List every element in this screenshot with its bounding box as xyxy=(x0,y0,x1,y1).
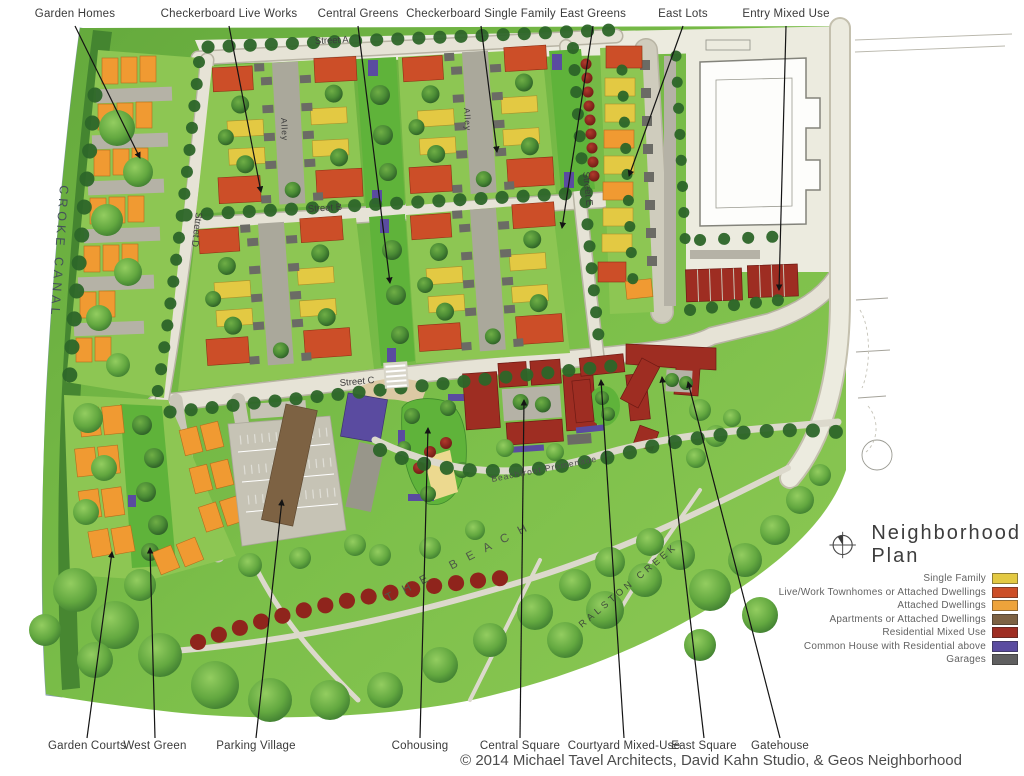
callout-parking-village: Parking Village xyxy=(216,740,296,752)
legend-label: Common House with Residential above xyxy=(804,641,986,652)
callout-cohousing: Cohousing xyxy=(392,740,449,752)
callout-checkerboard-live-works: Checkerboard Live Works xyxy=(161,8,298,20)
legend-row: Residential Mixed Use xyxy=(598,626,1018,639)
copyright-text: © 2014 Michael Tavel Architects, David K… xyxy=(460,752,962,769)
legend: Single Family Live/Work Townhomes or Att… xyxy=(598,572,1018,667)
legend-swatch-garages xyxy=(992,654,1018,665)
street-b-label: Street B xyxy=(308,202,343,215)
legend-swatch-common-house xyxy=(992,641,1018,652)
callout-checkerboard-single-family: Checkerboard Single Family xyxy=(406,8,556,20)
legend-label: Attached Dwellings xyxy=(897,600,986,611)
callout-east-square: East Square xyxy=(671,740,737,752)
legend-swatch-mixed-use xyxy=(992,627,1018,638)
callout-central-square: Central Square xyxy=(480,740,560,752)
legend-row: Live/Work Townhomes or Attached Dwelling… xyxy=(598,586,1018,599)
callout-east-greens: East Greens xyxy=(560,8,626,20)
legend-label: Apartments or Attached Dwellings xyxy=(830,614,986,625)
alley-west-label: Alley xyxy=(279,118,290,142)
callout-central-greens: Central Greens xyxy=(318,8,399,20)
legend-row: Garages xyxy=(598,653,1018,666)
title-block: Neighborhood Plan xyxy=(828,522,1024,568)
legend-label: Single Family xyxy=(923,573,986,584)
legend-label: Live/Work Townhomes or Attached Dwelling… xyxy=(779,587,986,598)
legend-row: Attached Dwellings xyxy=(598,599,1018,612)
neighborhood-plan-page: Street A Street B Street C Street D Stre… xyxy=(0,0,1024,776)
callout-garden-homes: Garden Homes xyxy=(35,8,115,20)
legend-swatch-livework xyxy=(992,587,1018,598)
legend-row: Single Family xyxy=(598,572,1018,585)
legend-swatch-single-family xyxy=(992,573,1018,584)
legend-swatch-attached xyxy=(992,600,1018,611)
alley-east-label: Alley xyxy=(462,108,473,132)
sketch-lines xyxy=(855,34,1012,470)
callout-east-lots: East Lots xyxy=(658,8,708,20)
callout-garden-courts: Garden Courts xyxy=(48,740,126,752)
callout-entry-mixed-use: Entry Mixed Use xyxy=(742,8,829,20)
page-title: Neighborhood Plan xyxy=(871,522,1024,568)
north-compass-icon xyxy=(828,526,857,564)
callout-courtyard-mixed-use: Courtyard Mixed-Use xyxy=(568,740,680,752)
legend-row: Common House with Residential above xyxy=(598,640,1018,653)
legend-label: Residential Mixed Use xyxy=(882,627,986,638)
callout-west-green: West Green xyxy=(123,740,186,752)
callout-gatehouse: Gatehouse xyxy=(751,740,809,752)
crosswalk xyxy=(383,361,409,389)
common-house xyxy=(340,393,387,443)
legend-row: Apartments or Attached Dwellings xyxy=(598,613,1018,626)
existing-building-outline xyxy=(700,58,820,226)
legend-swatch-apartments xyxy=(992,614,1018,625)
legend-label: Garages xyxy=(946,654,986,665)
street-a-label: Street A xyxy=(315,35,350,47)
